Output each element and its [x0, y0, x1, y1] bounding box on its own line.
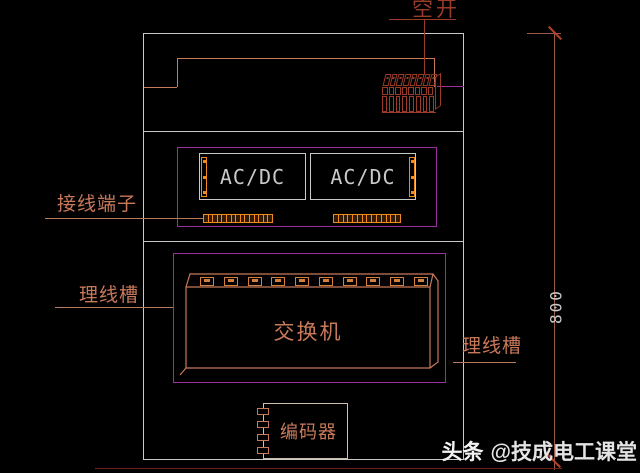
- acdc-unit-2: AC/DC: [310, 153, 416, 200]
- dimension-value: 800: [547, 285, 566, 329]
- switch-side-face: [430, 274, 438, 368]
- cell: [319, 277, 333, 286]
- cell: [389, 96, 394, 112]
- cell: [271, 277, 285, 286]
- cad-canvas: 空开 AC/DC AC/DC 接线端子 理线槽 交换机 理线槽 编码器 800: [0, 0, 640, 473]
- cell: [339, 215, 343, 222]
- cell: [414, 277, 428, 286]
- duct-left-leader-line: [55, 307, 174, 308]
- cell: [429, 96, 434, 112]
- cell: [411, 160, 414, 163]
- watermark-account: @技成电工课堂: [491, 436, 637, 466]
- cell: [395, 87, 401, 95]
- cell: [203, 191, 206, 194]
- breaker-terminal-row: [383, 74, 438, 86]
- encoder-box: 编码器: [263, 403, 348, 459]
- cell: [363, 215, 367, 222]
- cell: [372, 215, 376, 222]
- cell: [402, 87, 408, 95]
- cell: [415, 87, 421, 95]
- section-divider-top: [143, 131, 464, 132]
- duct-right-leader-line: [453, 362, 516, 363]
- cell: [382, 96, 387, 112]
- watermark-brand: 头条: [442, 436, 484, 466]
- breaker-base-line: [382, 112, 436, 113]
- cell: [255, 215, 259, 222]
- terminal-label: 接线端子: [57, 189, 137, 216]
- cell: [248, 277, 262, 286]
- duct-right-label: 理线槽: [462, 331, 522, 358]
- cell: [387, 215, 391, 222]
- cell: [232, 215, 236, 222]
- cell: [295, 277, 309, 286]
- cell: [382, 215, 386, 222]
- cell: [411, 191, 414, 194]
- cell: [366, 277, 380, 286]
- cell: [259, 215, 263, 222]
- din-rail-line: [144, 87, 177, 88]
- cell: [222, 215, 226, 222]
- cell: [402, 96, 407, 112]
- encoder-connector-column: [257, 408, 269, 454]
- cell: [411, 176, 414, 179]
- cell: [344, 215, 348, 222]
- dimension-line: [554, 33, 555, 470]
- cell: [203, 160, 206, 163]
- cell: [423, 96, 428, 112]
- dimension-bottom-extension-line: [95, 468, 562, 469]
- din-rail-line-right: [437, 86, 464, 87]
- duct-left-label: 理线槽: [79, 280, 139, 307]
- din-rail-line: [177, 58, 434, 59]
- cell: [257, 434, 269, 441]
- cell: [382, 87, 388, 95]
- cell: [264, 215, 268, 222]
- cell: [268, 215, 272, 222]
- cell: [390, 277, 404, 286]
- cell: [343, 277, 357, 286]
- cell: [428, 87, 434, 95]
- cell: [334, 215, 338, 222]
- breaker-leader-line: [424, 20, 425, 75]
- switch-label: 交换机: [246, 316, 370, 346]
- cell: [358, 215, 362, 222]
- cell: [408, 87, 414, 95]
- cell: [209, 215, 213, 222]
- cell: [224, 277, 238, 286]
- din-rail-line: [177, 58, 178, 87]
- breaker-fin-row: [382, 96, 434, 112]
- section-divider-bottom: [143, 241, 464, 242]
- terminal-leader-line: [45, 218, 203, 219]
- acdc-mounting-strip-left: [201, 157, 207, 197]
- cell: [204, 215, 208, 222]
- terminal-strip-1: [203, 214, 273, 223]
- cell: [250, 215, 254, 222]
- cell: [245, 215, 249, 222]
- cell: [409, 96, 414, 112]
- cell: [353, 215, 357, 222]
- cell: [257, 421, 269, 428]
- switch-foot-line: [180, 368, 186, 375]
- cell: [257, 408, 269, 415]
- cell: [377, 215, 381, 222]
- cell: [391, 215, 395, 222]
- cell: [203, 176, 206, 179]
- terminal-strip-2: [333, 214, 401, 223]
- cell: [348, 215, 352, 222]
- cell: [367, 215, 371, 222]
- cell: [421, 87, 427, 95]
- cell: [396, 215, 400, 222]
- circuit-breaker: [381, 74, 441, 114]
- cell: [213, 215, 217, 222]
- acdc-unit-1: AC/DC: [199, 153, 306, 200]
- breaker-body-row: [382, 87, 433, 95]
- cell: [389, 87, 395, 95]
- breaker-label-underline: [389, 19, 456, 20]
- cell: [416, 96, 421, 112]
- cell: [241, 215, 245, 222]
- breaker-side-face: [435, 73, 441, 110]
- cell: [200, 277, 214, 286]
- cell: [236, 215, 240, 222]
- cell: [218, 215, 222, 222]
- switch-port-row: [200, 277, 428, 286]
- cell: [257, 447, 269, 454]
- cell: [227, 215, 231, 222]
- watermark: 头条 @技成电工课堂: [442, 436, 637, 466]
- acdc-mounting-strip-right: [409, 157, 415, 197]
- cell: [396, 96, 401, 112]
